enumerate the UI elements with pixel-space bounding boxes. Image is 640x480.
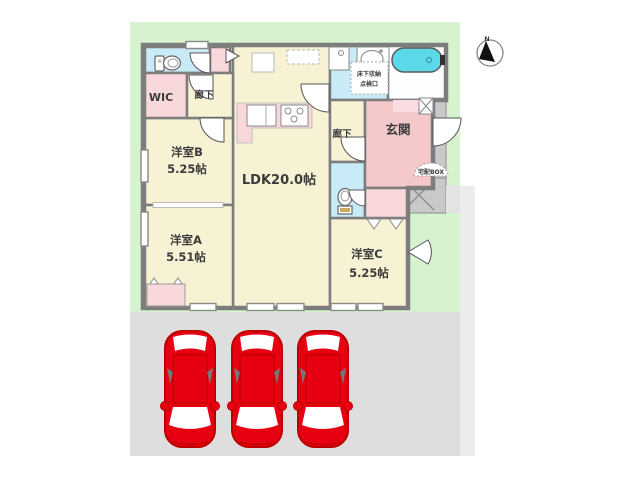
- delivery-box-label: 宅配BOX: [418, 168, 444, 176]
- underfloor-storage-box: [351, 62, 388, 94]
- window: [331, 304, 356, 311]
- bedroom-a-area: 5.51帖: [166, 250, 206, 264]
- washbasin: [329, 47, 349, 70]
- closet-bedroom-c: [365, 188, 408, 218]
- room-bedroom-c: [330, 218, 408, 308]
- window: [141, 212, 148, 246]
- vanity-faucet: [379, 49, 383, 53]
- compass-north-label: N: [484, 35, 489, 43]
- inspection-hatch-label: 点検口: [360, 80, 378, 88]
- toilet-tank-mark: [340, 208, 350, 212]
- car-icon: [161, 331, 220, 447]
- stove: [281, 105, 308, 126]
- cabinet: [252, 53, 274, 72]
- window: [358, 304, 383, 311]
- bedroom-b-area: 5.25帖: [167, 162, 207, 176]
- sliding-partition: [153, 203, 223, 208]
- entrance-label: 玄関: [385, 122, 410, 137]
- window: [141, 150, 148, 182]
- approach: [446, 186, 460, 213]
- bedroom-a-label: 洋室A: [170, 233, 202, 247]
- bedroom-c-area: 5.25帖: [349, 266, 389, 280]
- window: [186, 42, 208, 49]
- hallway-entry-label: 廊下: [332, 128, 352, 140]
- closet-bedroom-a: [147, 284, 185, 306]
- window: [247, 304, 274, 311]
- toilet-tank: [155, 56, 164, 71]
- ldk-label: LDK20.0帖: [242, 172, 316, 188]
- bath-faucet: [440, 55, 445, 65]
- cabinet: [287, 50, 319, 64]
- toilet-tank-mark: [158, 59, 162, 63]
- hallway-upper-label: 廊下: [194, 89, 214, 101]
- kitchen-sink: [247, 105, 276, 126]
- floor-plan-drawing: 床下収納 点検口 宅配BOX WIC 廊下 洋室B 5.25帖 LDK20.0: [0, 0, 640, 480]
- bathtub-icon: [392, 48, 442, 72]
- bedroom-b-label: 洋室B: [171, 145, 203, 159]
- car-icon: [228, 331, 287, 447]
- compass-icon: N: [477, 35, 503, 66]
- bedroom-c-label: 洋室C: [351, 247, 382, 261]
- window: [190, 304, 216, 311]
- floor-plan: 床下収納 点検口 宅配BOX WIC 廊下 洋室B 5.25帖 LDK20.0: [0, 0, 640, 480]
- window: [277, 304, 304, 311]
- side-path: [460, 186, 475, 456]
- wic-label: WIC: [149, 91, 173, 104]
- car-icon: [294, 331, 353, 447]
- underfloor-storage-label: 床下収納: [357, 70, 381, 78]
